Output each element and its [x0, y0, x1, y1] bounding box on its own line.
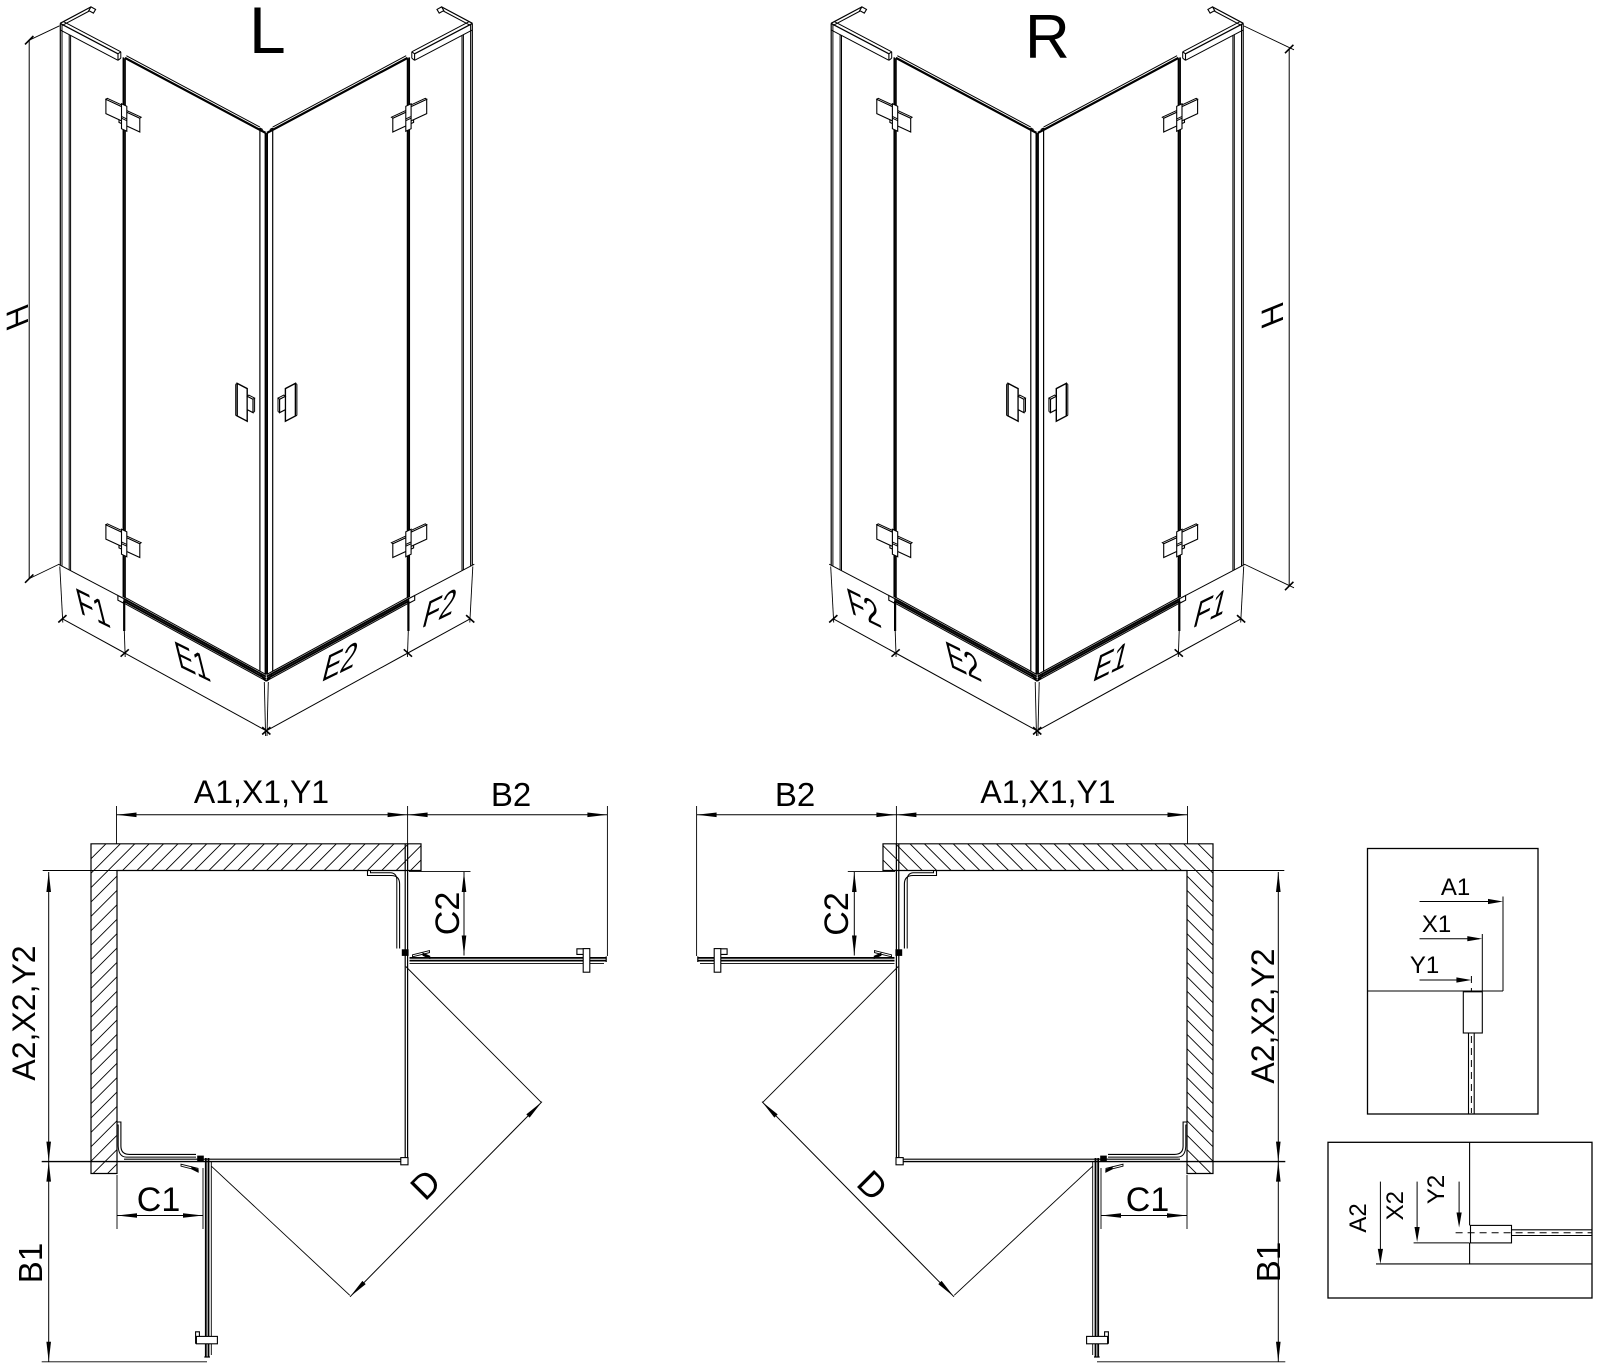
svg-text:C2: C2	[429, 892, 467, 935]
svg-text:X2: X2	[1382, 1191, 1409, 1220]
svg-text:L: L	[249, 0, 286, 67]
svg-text:A2,X2,Y2: A2,X2,Y2	[6, 945, 42, 1080]
svg-text:B1: B1	[12, 1243, 49, 1283]
svg-text:C2: C2	[818, 892, 856, 935]
svg-text:C1: C1	[1126, 1181, 1169, 1219]
svg-text:C1: C1	[137, 1181, 180, 1219]
svg-text:X1: X1	[1422, 911, 1451, 938]
svg-text:B1: B1	[1250, 1242, 1287, 1282]
svg-text:A2,X2,Y2: A2,X2,Y2	[1245, 948, 1281, 1083]
svg-text:Y1: Y1	[1410, 952, 1439, 979]
svg-text:A1,X1,Y1: A1,X1,Y1	[980, 774, 1115, 810]
svg-text:Y2: Y2	[1423, 1175, 1450, 1204]
svg-text:B2: B2	[775, 776, 815, 813]
svg-text:A1,X1,Y1: A1,X1,Y1	[194, 774, 329, 810]
svg-text:R: R	[1025, 3, 1070, 72]
svg-text:A2: A2	[1345, 1203, 1372, 1232]
svg-text:B2: B2	[491, 776, 531, 813]
svg-text:A1: A1	[1441, 874, 1470, 901]
